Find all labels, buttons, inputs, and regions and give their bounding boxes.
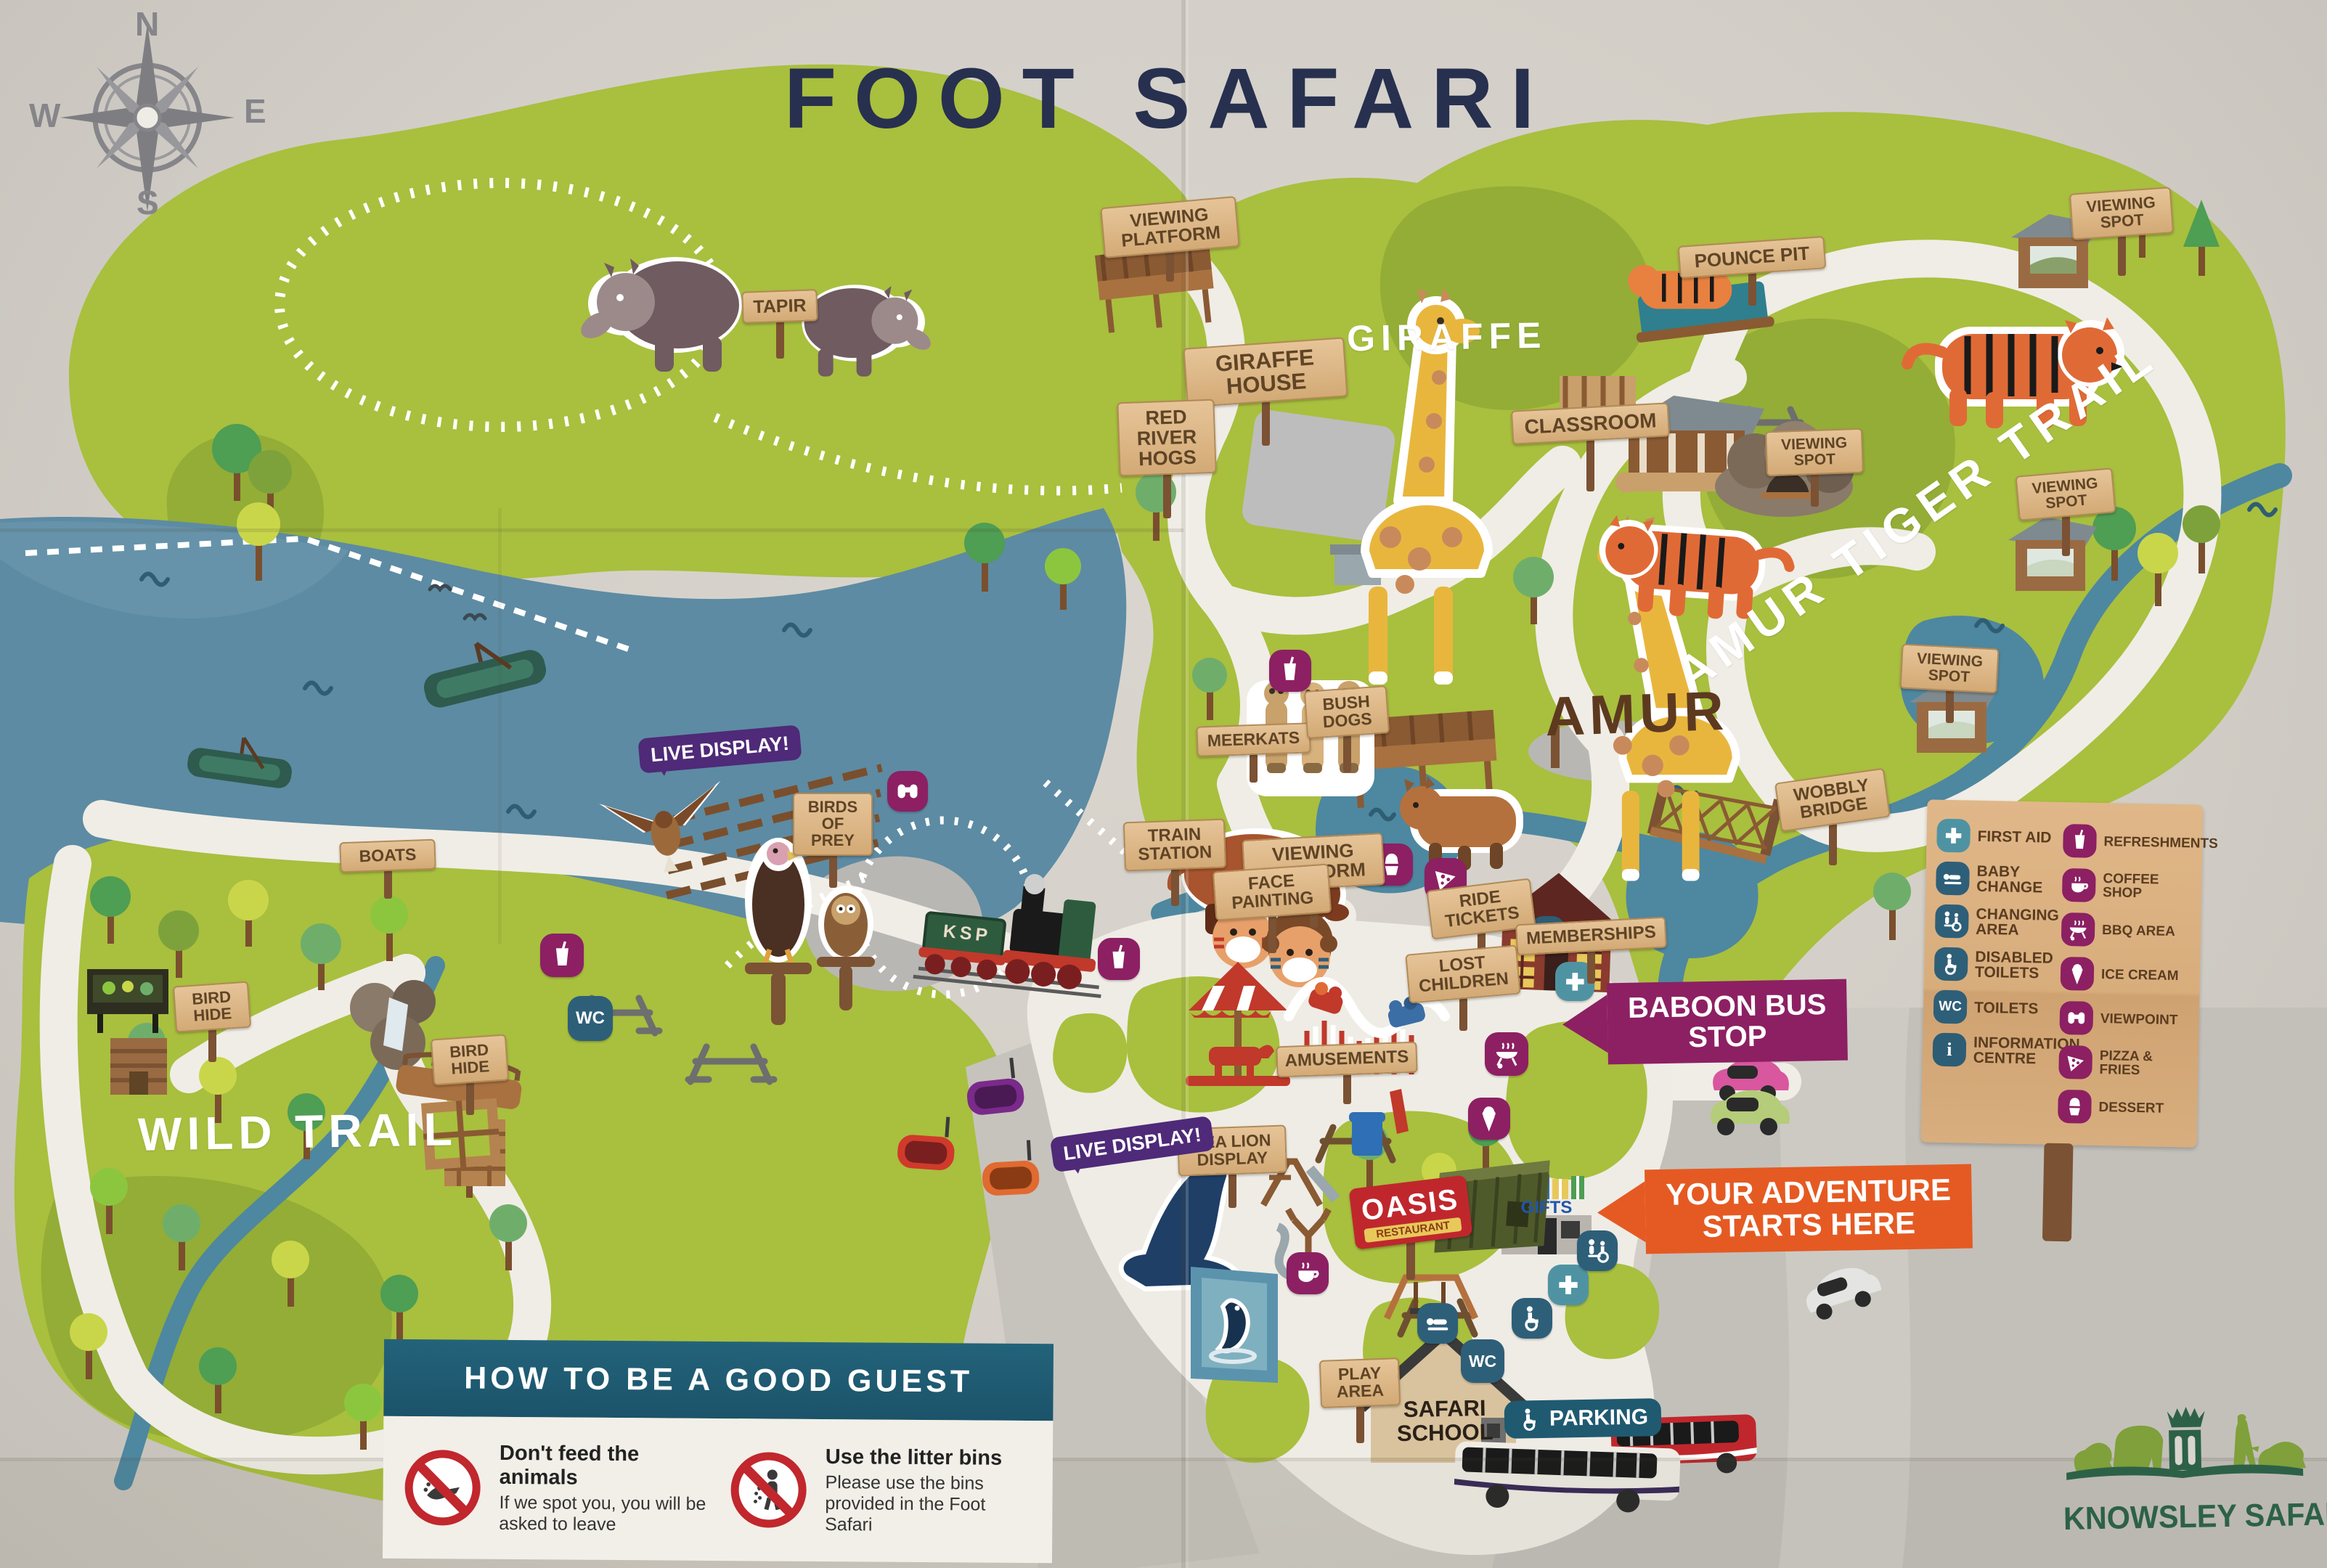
wobbly-bridge-sign: WOBBLY BRIDGE bbox=[1777, 775, 1888, 865]
classroom-sign: CLASSROOM bbox=[1512, 407, 1669, 491]
rule-use-bins: Use the litter bins Please use the bins … bbox=[825, 1445, 1031, 1536]
bird-hide-sign-2: BIRD HIDE bbox=[432, 1037, 508, 1115]
tapir-sign: TAPIR bbox=[742, 290, 818, 359]
amur-gate-label: AMUR bbox=[1544, 679, 1729, 749]
refreshments-icon bbox=[1269, 650, 1311, 692]
viewpoint-icon bbox=[2059, 1001, 2093, 1035]
bbq-area-icon bbox=[2061, 912, 2095, 947]
viewing-spot-sign-4: VIEWING SPOT bbox=[1901, 646, 1998, 723]
knowsley-safari-logo: KNOWSLEY SAFARI bbox=[2053, 1399, 2317, 1538]
legend-item: DISABLED TOILETS bbox=[1934, 947, 2057, 983]
bush-dogs-sign: BUSH DOGS bbox=[1305, 688, 1388, 772]
meerkats-sign: MEERKATS bbox=[1197, 724, 1311, 783]
logo-text: KNOWSLEY SAFARI bbox=[2063, 1497, 2310, 1538]
legend-item: BBQ AREA bbox=[2061, 912, 2200, 949]
dessert-icon bbox=[2058, 1090, 2092, 1124]
legend-item: FIRST AID bbox=[1936, 819, 2059, 854]
good-guest-panel: HOW TO BE A GOOD GUEST Don't feed the an… bbox=[383, 1339, 1054, 1563]
arrow-left-icon bbox=[1597, 1181, 1645, 1243]
no-feeding-icon bbox=[404, 1450, 481, 1526]
boats-sign: BOATS bbox=[340, 841, 436, 899]
bbq-area-icon bbox=[1485, 1032, 1528, 1076]
legend-item: PIZZA & FRIES bbox=[2058, 1045, 2197, 1082]
legend-item: ICE CREAM bbox=[2061, 957, 2199, 993]
viewing-spot-sign-1: VIEWING SPOT bbox=[2071, 190, 2172, 276]
legend-item: BABY CHANGE bbox=[1936, 862, 2058, 897]
compass-north-label: N bbox=[135, 4, 159, 44]
disabled-toilets-icon bbox=[1934, 947, 1968, 981]
viewpoint-icon bbox=[887, 771, 928, 812]
baboon-bus-stop-banner: BABOON BUS STOP bbox=[1562, 979, 1848, 1066]
sign-post bbox=[1406, 1240, 1415, 1280]
good-guest-header: HOW TO BE A GOOD GUEST bbox=[383, 1339, 1054, 1421]
legend-item: iINFORMATION CENTRE bbox=[1933, 1033, 2055, 1069]
adventure-starts-here-banner: YOUR ADVENTURE STARTS HERE bbox=[1597, 1164, 1973, 1255]
changing-area-icon bbox=[1935, 905, 1969, 939]
logo-animals-icon bbox=[2061, 1399, 2309, 1498]
arrow-left-icon bbox=[1562, 995, 1607, 1053]
coffee-shop-icon bbox=[2062, 868, 2096, 902]
baby-change-icon bbox=[1936, 862, 1970, 896]
legend-item: CHANGING AREA bbox=[1935, 905, 2058, 940]
disabled-toilets-icon bbox=[1512, 1298, 1552, 1339]
viewing-platform-sign: VIEWING PLATFORM bbox=[1102, 202, 1238, 282]
wheelchair-icon bbox=[1517, 1407, 1543, 1432]
pounce-pit-sign: POUNCE PIT bbox=[1679, 241, 1825, 306]
toilets-wc-icon: WC bbox=[1461, 1339, 1504, 1383]
face-painting-sign: FACE PAINTING bbox=[1214, 867, 1330, 953]
parking-banner: PARKING bbox=[1504, 1398, 1662, 1439]
toilets-icon: WC bbox=[1933, 990, 1968, 1024]
parking-label: PARKING bbox=[1549, 1405, 1649, 1431]
birds-of-prey-sign: BIRDS OF PREY bbox=[793, 793, 873, 888]
facilities-legend: FIRST AID BABY CHANGE CHANGING AREA DISA… bbox=[1921, 799, 2204, 1147]
legend-item: DESSERT bbox=[2058, 1090, 2196, 1126]
red-river-hogs-sign: RED RIVER HOGS bbox=[1118, 401, 1215, 518]
pizza-fries-icon bbox=[2058, 1045, 2092, 1079]
good-guest-title: HOW TO BE A GOOD GUEST bbox=[464, 1360, 973, 1400]
train-station-sign: TRAIN STATION bbox=[1124, 820, 1226, 906]
no-littering-icon bbox=[730, 1452, 807, 1528]
compass-rose-icon: N W E S bbox=[28, 10, 267, 228]
wild-trail-area-label: WILD TRAIL bbox=[137, 1102, 457, 1161]
baby-change-icon bbox=[1417, 1303, 1458, 1344]
refreshments-icon bbox=[1098, 938, 1140, 980]
foot-safari-map: FOOT SAFARI N W E S GIRAFFE AMUR TIGER T… bbox=[0, 0, 2327, 1568]
bird-hide-sign-1: BIRD HIDE bbox=[174, 984, 250, 1062]
giraffe-area-label: GIRAFFE bbox=[1347, 314, 1547, 360]
memberships-sign: MEMBERSHIPS bbox=[1516, 920, 1666, 984]
compass-west-label: W bbox=[29, 96, 60, 135]
viewing-spot-sign-3: VIEWING SPOT bbox=[2017, 472, 2114, 556]
rule-no-feeding: Don't feed the animals If we spot you, y… bbox=[499, 1442, 712, 1536]
amusements-sign: AMUSEMENTS bbox=[1276, 1044, 1417, 1104]
viewing-spot-sign-2: VIEWING SPOT bbox=[1766, 430, 1863, 507]
ice-cream-icon bbox=[2061, 957, 2095, 991]
lost-children-sign: LOST CHILDREN bbox=[1407, 950, 1519, 1031]
coffee-shop-icon bbox=[1287, 1252, 1329, 1294]
ice-cream-icon bbox=[1468, 1098, 1510, 1140]
oasis-restaurant-sign: OASIS RESTAURANT bbox=[1352, 1182, 1470, 1280]
gifts-shop-label: GIFTS bbox=[1517, 1198, 1576, 1218]
first-aid-icon bbox=[1936, 819, 1971, 853]
compass-east-label: E bbox=[244, 91, 266, 131]
legend-item: VIEWPOINT bbox=[2059, 1001, 2198, 1037]
toilets-wc-icon: WC bbox=[568, 996, 613, 1041]
legend-item: WCTOILETS bbox=[1933, 990, 2056, 1026]
page-title: FOOT SAFARI bbox=[784, 49, 1539, 148]
safari-school-label: SAFARI SCHOOL bbox=[1382, 1397, 1507, 1446]
legend-item: COFFEE SHOP bbox=[2062, 868, 2201, 905]
compass-south-label: S bbox=[136, 183, 159, 222]
refreshments-icon bbox=[540, 934, 584, 977]
first-aid-icon bbox=[1548, 1265, 1589, 1305]
legend-item: REFRESHMENTS bbox=[2063, 824, 2201, 860]
information-centre-icon: i bbox=[1933, 1033, 1967, 1067]
refreshments-icon bbox=[2063, 824, 2097, 858]
